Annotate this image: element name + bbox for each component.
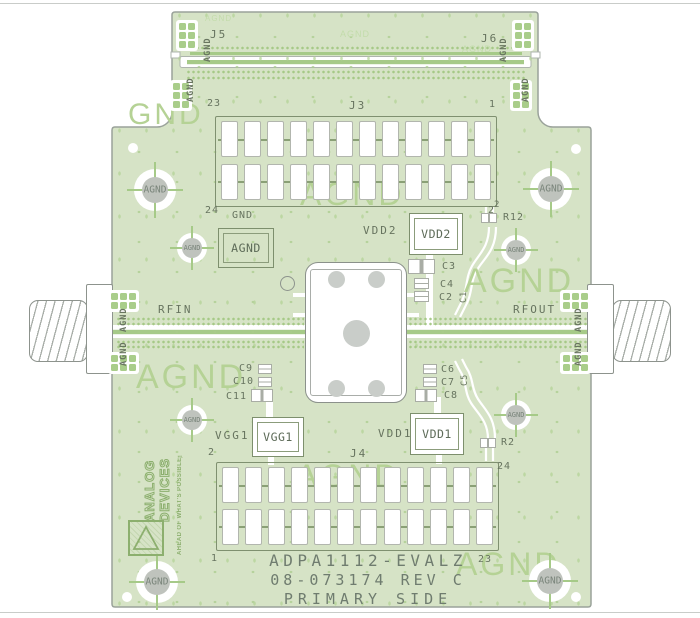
slot-end-tab [171, 52, 180, 58]
j3-pin23-label: 23 [207, 98, 221, 109]
hole-agnd-text: AGND [508, 246, 525, 254]
agnd-label: AGND [574, 302, 584, 332]
agnd-label: AGND [186, 64, 196, 102]
ground-pad [129, 364, 136, 371]
via-row [186, 76, 526, 80]
ground-pad [563, 293, 570, 300]
c2-label: C2 [439, 292, 453, 303]
agnd-watermark-small: AGND [340, 29, 370, 39]
ground-pad [129, 302, 136, 309]
ground-pad [563, 302, 570, 309]
ground-pad [563, 364, 570, 371]
via-row [116, 340, 304, 344]
ground-pad [111, 293, 118, 300]
agnd-watermark: AGND [464, 262, 574, 301]
connector-pad [430, 467, 447, 503]
connector-pad [336, 121, 353, 157]
mounting-hole-agnd-small: AGND [177, 405, 207, 435]
connector-pad [244, 164, 261, 200]
mounting-hole-agnd: AGND [530, 168, 572, 210]
testpoint-vdd2: VDD2 [409, 213, 463, 255]
connector-pad [382, 164, 399, 200]
capacitor-c11 [251, 389, 273, 402]
via-row [186, 70, 526, 74]
capacitor-c6 [423, 364, 437, 374]
ground-pad [513, 83, 520, 90]
mounting-hole-agnd-small: AGND [501, 235, 531, 265]
resistor-r2 [480, 438, 496, 448]
slot-end-tab [531, 52, 540, 58]
dut-ground-via [328, 271, 345, 288]
rfout-label: RFOUT [513, 303, 556, 316]
ground-pad [513, 101, 520, 108]
ground-pad [120, 293, 127, 300]
connector-pad [360, 467, 377, 503]
tooling-hole [122, 592, 132, 602]
connector-pad [268, 509, 285, 545]
capacitor-c7 [423, 377, 437, 387]
connector-pad [267, 121, 284, 157]
agnd-label: AGND [499, 24, 509, 62]
ground-pad [515, 23, 522, 30]
connector-pad [407, 509, 424, 545]
connector-pad [476, 509, 493, 545]
c7-label: C7 [441, 377, 455, 388]
mounting-hole-agnd-small: AGND [501, 400, 531, 430]
rfin-label: RFIN [158, 303, 193, 316]
ground-pad [173, 83, 180, 90]
adi-logo-name1: ANALOG [142, 438, 157, 522]
ground-pad [188, 23, 195, 30]
testpoint-agnd-text: AGND [231, 241, 261, 255]
pcb-layout-view: GND AGND AGND AGND AGND AGND AGND AGND A… [0, 0, 700, 618]
mounting-hole-agnd-small: AGND [177, 233, 207, 263]
via-row [408, 322, 588, 326]
connector-pad [245, 467, 262, 503]
connector-pad [359, 164, 376, 200]
connector-pad [291, 509, 308, 545]
via-row [408, 345, 588, 349]
adi-logo-tagline: AHEAD OF WHAT'S POSSIBLE™ [177, 437, 183, 555]
adi-triangle-icon [130, 522, 162, 554]
hole-agnd-text: AGND [508, 411, 525, 419]
connector-pad [476, 467, 493, 503]
adi-logo: ANALOG DEVICES AHEAD OF WHAT'S POSSIBLE™ [126, 432, 196, 562]
ground-pad [524, 23, 531, 30]
capacitor-c9 [258, 364, 272, 374]
adi-logo-name2: DEVICES [157, 438, 172, 522]
connector-pad [451, 121, 468, 157]
connector-pad [430, 509, 447, 545]
ground-pad [515, 41, 522, 48]
sma-connector-rfin [29, 300, 88, 362]
sma-flange-rfout [587, 284, 614, 374]
j4-label: J4 [350, 447, 367, 460]
hole-agnd-text: AGND [539, 576, 562, 587]
ground-pad [182, 101, 189, 108]
j6-label: J6 [481, 32, 498, 45]
hole-agnd-text: AGND [144, 185, 167, 196]
ground-pad [581, 293, 588, 300]
testpoint-vgg1-text: VGG1 [263, 430, 293, 444]
ground-pad [524, 32, 531, 39]
ground-pad [572, 293, 579, 300]
c1-label: C1 [459, 281, 469, 303]
cal-trace-j5j6 [190, 52, 522, 55]
hole-agnd-text: AGND [146, 577, 169, 588]
capacitor-c10 [258, 377, 272, 387]
ground-pad [129, 355, 136, 362]
vdd1-label: VDD1 [378, 427, 413, 440]
agnd-watermark: GND [128, 98, 204, 132]
ground-pad [522, 101, 529, 108]
via-row [116, 317, 304, 321]
c3-label: C3 [442, 261, 456, 272]
j5-label: J5 [210, 28, 227, 41]
ground-pad [188, 32, 195, 39]
connector-pad [384, 509, 401, 545]
via-row [190, 46, 522, 50]
connector-pad [360, 509, 377, 545]
mounting-hole-agnd: AGND [134, 169, 176, 211]
ground-pad [513, 92, 520, 99]
connector-pad [314, 509, 331, 545]
connector-pad [337, 509, 354, 545]
dut-ground-via [328, 380, 345, 397]
connector-pad [267, 164, 284, 200]
dut-ground-via [368, 271, 385, 288]
connector-pad [290, 121, 307, 157]
via-row [116, 322, 304, 326]
ground-pad [173, 101, 180, 108]
connector-pad [291, 467, 308, 503]
r12-label: R12 [503, 212, 524, 223]
dut-ground-via [368, 380, 385, 397]
c6-label: C6 [441, 364, 455, 375]
ground-pad [188, 41, 195, 48]
connector-j4 [216, 462, 499, 551]
hole-agnd-text: AGND [540, 184, 563, 195]
hole-agnd-text: AGND [184, 416, 201, 424]
slot-cal-trace [187, 60, 524, 64]
agnd-label: AGND [521, 64, 531, 102]
c10-label: C10 [233, 376, 254, 387]
via-row [408, 317, 588, 321]
ground-pad [173, 92, 180, 99]
hole-agnd-text: AGND [184, 244, 201, 252]
capacitor-c4 [414, 278, 429, 289]
pin1-marker [280, 276, 295, 291]
connector-pad [313, 164, 330, 200]
j4-pin24-label: 24 [497, 461, 511, 472]
connector-pad [336, 164, 353, 200]
connector-pad [268, 467, 285, 503]
agnd-watermark-small: AGND [205, 14, 232, 23]
vgg1-label: VGG1 [215, 429, 250, 442]
connector-pad [453, 509, 470, 545]
agnd-label: AGND [574, 336, 584, 366]
c4-label: C4 [440, 279, 454, 290]
gnd-label: GND [232, 210, 253, 221]
agnd-label: AGND [119, 302, 129, 332]
connector-pad [451, 164, 468, 200]
ground-pad [179, 41, 186, 48]
r2-label: R2 [501, 437, 515, 448]
connector-pad [290, 164, 307, 200]
connector-pad [222, 467, 239, 503]
rfin-trace [112, 330, 306, 334]
ground-pad [111, 355, 118, 362]
ground-pad [111, 302, 118, 309]
ground-pad [563, 355, 570, 362]
testpoint-vgg1: VGG1 [252, 417, 304, 457]
tooling-hole [128, 143, 138, 153]
adi-logo-mark [128, 520, 164, 556]
agnd-label: AGND [119, 336, 129, 366]
ground-pad [179, 32, 186, 39]
mounting-hole-agnd: AGND [529, 560, 571, 602]
connector-pad [382, 121, 399, 157]
agnd-pad-cluster [176, 20, 198, 51]
connector-pad [313, 121, 330, 157]
via-row [116, 345, 304, 349]
c5-label: C5 [460, 364, 470, 386]
connector-j3 [215, 116, 497, 207]
connector-pad [405, 164, 422, 200]
tooling-hole [571, 592, 581, 602]
ground-pad [524, 41, 531, 48]
j3-label: J3 [349, 99, 366, 112]
dut-center-via [343, 320, 370, 347]
vdd2-label: VDD2 [363, 224, 398, 237]
j3-pin24-label: 24 [205, 205, 219, 216]
connector-pad [384, 467, 401, 503]
testpoint-vdd2-text: VDD2 [421, 227, 451, 241]
c9-label: C9 [239, 363, 253, 374]
via-row [408, 340, 588, 344]
capacitor-c2 [414, 291, 429, 302]
testpoint-agnd: AGND [218, 228, 274, 268]
connector-pad [314, 467, 331, 503]
connector-pad [428, 121, 445, 157]
rfout-trace [406, 330, 591, 334]
connector-pad [337, 467, 354, 503]
testpoint-vdd1-text: VDD1 [422, 427, 452, 441]
connector-pad [221, 121, 238, 157]
j4-pin1-label: 1 [211, 553, 218, 564]
connector-pad [359, 121, 376, 157]
connector-pad [245, 509, 262, 545]
board-name: ADPA1112-EVALZ [218, 551, 518, 570]
sma-connector-rfout [612, 300, 671, 362]
board-number-rev: 08-073174 REV C [218, 571, 518, 589]
connector-pad [405, 121, 422, 157]
connector-pad [221, 164, 238, 200]
mounting-hole-agnd: AGND [136, 561, 178, 603]
connector-pad [453, 467, 470, 503]
ground-pad [515, 32, 522, 39]
connector-pad [474, 164, 491, 200]
connector-pad [244, 121, 261, 157]
j3-pin2-label: 2 [488, 205, 495, 216]
capacitor-c3 [408, 259, 435, 274]
testpoint-vdd1: VDD1 [410, 413, 464, 455]
j4-pin2-label: 2 [208, 447, 215, 458]
c11-label: C11 [226, 391, 247, 402]
agnd-pad-cluster [512, 20, 534, 51]
j3-pin1-label: 1 [489, 99, 496, 110]
ground-pad [111, 364, 118, 371]
dut-footprint [305, 262, 407, 403]
connector-pad [222, 509, 239, 545]
capacitor-c8 [415, 389, 437, 402]
board-side: PRIMARY SIDE [218, 590, 518, 608]
ground-pad [129, 293, 136, 300]
c8-label: C8 [444, 390, 458, 401]
tooling-hole [571, 144, 581, 154]
connector-pad [474, 121, 491, 157]
connector-pad [428, 164, 445, 200]
ground-pad [179, 23, 186, 30]
connector-pad [407, 467, 424, 503]
